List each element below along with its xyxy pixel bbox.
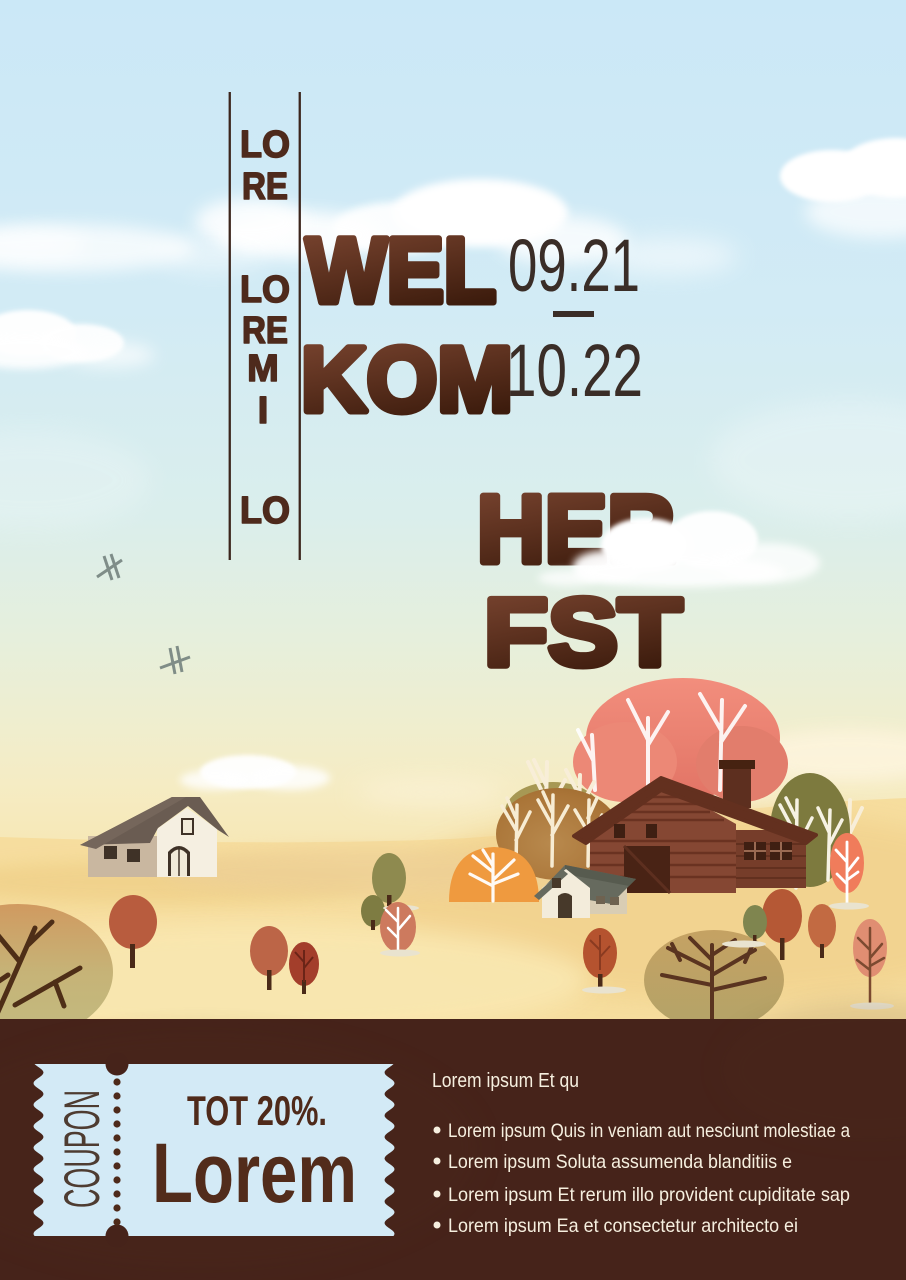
svg-text:Lorem: Lorem [152, 1126, 357, 1220]
svg-text:Lorem ipsum Soluta assumenda b: Lorem ipsum Soluta assumenda blanditiis … [448, 1151, 792, 1173]
svg-text:Lorem ipsum Et rerum illo prov: Lorem ipsum Et rerum illo provident cupi… [448, 1184, 850, 1206]
svg-text:LO: LO [240, 490, 290, 532]
svg-text:M: M [247, 348, 279, 390]
svg-text:COUPON: COUPON [54, 1090, 110, 1208]
svg-text:KOM: KOM [301, 329, 513, 431]
svg-text:RE: RE [242, 310, 288, 352]
svg-text:LO: LO [240, 269, 290, 311]
svg-text:Lorem ipsum Et qu: Lorem ipsum Et qu [432, 1070, 579, 1092]
svg-text:FST: FST [484, 579, 682, 686]
svg-text:Lorem ipsum Quis in veniam aut: Lorem ipsum Quis in veniam aut nesciunt … [448, 1120, 850, 1142]
svg-text:I: I [258, 390, 269, 432]
svg-text:RE: RE [242, 166, 288, 208]
svg-text:Lorem ipsum Ea et consectetur: Lorem ipsum Ea et consectetur architecto… [448, 1215, 798, 1237]
svg-text:LO: LO [240, 124, 290, 166]
svg-text:09.21: 09.21 [508, 224, 640, 307]
svg-text:WEL: WEL [306, 220, 496, 322]
svg-text:10.22: 10.22 [506, 329, 643, 412]
